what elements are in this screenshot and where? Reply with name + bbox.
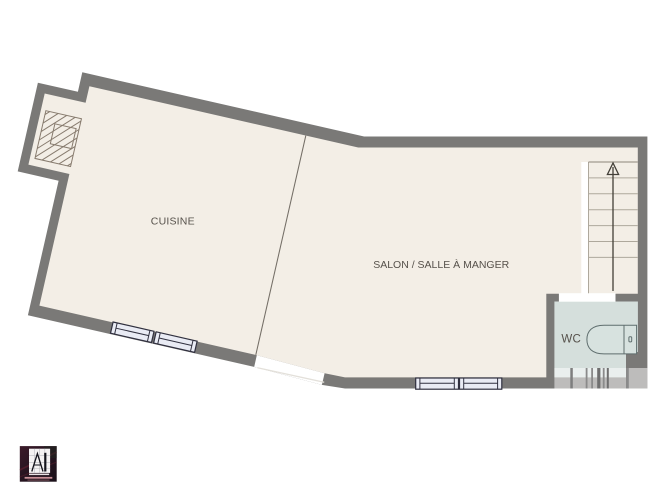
svg-text:WC: WC — [561, 333, 581, 345]
svg-text:CUISINE: CUISINE — [151, 215, 195, 227]
svg-text:SALON / SALLE À MANGER: SALON / SALLE À MANGER — [373, 258, 509, 271]
